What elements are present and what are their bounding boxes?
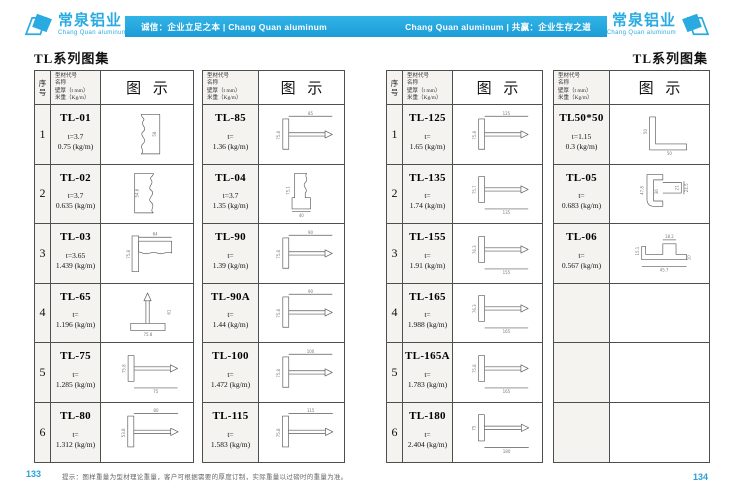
profile-section-drawing: 18075 — [456, 406, 540, 458]
profile-code: TL-75 — [60, 350, 91, 362]
brand-logo-text: 常泉铝业 Chang Quan aluminum — [58, 13, 127, 36]
footer-note: 提示：图样重量为型材理论重量，客户可根据需要的厚度订制，实际重量以过磅时的重量为… — [62, 471, 492, 481]
diagram-column-header: 图 示 — [610, 71, 709, 105]
svg-text:165: 165 — [502, 389, 510, 394]
profile-section-drawing: 75.861 — [104, 287, 190, 338]
svg-text:115: 115 — [306, 408, 314, 413]
profile-spec — [554, 403, 610, 463]
profile-weight: 1.439 (kg/m) — [56, 261, 95, 271]
profile-drawing-cell: 16576.3 — [453, 284, 542, 344]
banner-slogan-left: 诚信：企业立足之本 | Chang Quan aluminum — [141, 21, 327, 33]
profile-section-drawing: 11575.8 — [262, 406, 342, 458]
svg-text:135: 135 — [502, 210, 510, 215]
profile-weight: 1.74 (kg/m) — [410, 201, 445, 211]
profile-section-drawing: 8575.8 — [262, 109, 342, 160]
profile-table-1: 序 号型材代号名称壁厚（t mm）米重（Kg/m）图 示1TL-01t=3.70… — [34, 70, 194, 463]
profile-drawing-cell: 16575.8 — [453, 343, 542, 403]
profile-weight: 1.35 (kg/m) — [213, 201, 248, 211]
svg-text:50: 50 — [667, 151, 673, 156]
profile-code: TL-03 — [60, 231, 91, 243]
profile-spec: TL-180t=2.404 (kg/m) — [403, 403, 453, 463]
profile-table-4: 型材代号名称壁厚（t mm）米重（Kg/m）图 示TL50*50t=1.150.… — [553, 70, 710, 463]
banner-slogan-right: Chang Quan aluminum | 共赢：企业生存之道 — [405, 21, 591, 33]
page-number-left: 133 — [26, 469, 41, 479]
profile-section-drawing: 9075.8 — [262, 228, 342, 279]
profile-section-drawing: 47.8362124.5 — [613, 168, 706, 219]
profile-code: TL-85 — [215, 112, 246, 124]
profile-thickness: t= — [424, 370, 430, 380]
profile-drawing-cell: 13575.7 — [453, 165, 542, 225]
profile-section-drawing: 58 — [104, 109, 190, 160]
gem-icon — [680, 11, 710, 37]
profile-thickness: t=3.7 — [223, 191, 239, 201]
spec-header-line: 壁厚（t mm） — [207, 88, 240, 96]
svg-text:85: 85 — [308, 110, 314, 115]
profile-code: TL-65 — [60, 291, 91, 303]
row-seq: 1 — [35, 105, 51, 165]
profile-code: TL-06 — [566, 231, 597, 243]
profile-weight: 2.404 (kg/m) — [408, 440, 447, 450]
profile-drawing-cell: 54.6 — [101, 165, 193, 225]
svg-text:90: 90 — [308, 289, 314, 294]
profile-section-drawing: 15576.3 — [456, 228, 540, 279]
profile-spec: TL-125t=1.65 (kg/m) — [403, 105, 453, 165]
row-seq: 3 — [35, 224, 51, 284]
profile-section-drawing: 8053.8 — [104, 406, 190, 458]
profile-weight: 1.472 (kg/m) — [211, 380, 250, 390]
svg-text:21: 21 — [675, 185, 680, 191]
spec-header-line: 名称 — [207, 80, 218, 88]
profile-code: TL-02 — [60, 172, 91, 184]
profile-thickness: t=3.7 — [68, 191, 84, 201]
profile-weight: 1.44 (kg/m) — [213, 320, 248, 330]
profile-thickness: t= — [227, 310, 233, 320]
svg-text:64: 64 — [152, 231, 158, 236]
spec-header-line: 型材代号 — [207, 73, 229, 81]
profile-drawing-cell — [610, 403, 709, 463]
spec-column-header: 型材代号名称壁厚（t mm）米重（Kg/m） — [403, 71, 453, 105]
spec-header-line: 名称 — [558, 80, 569, 88]
svg-text:75.1: 75.1 — [285, 186, 290, 195]
profile-weight: 1.312 (kg/m) — [56, 440, 95, 450]
profile-weight: 1.196 (kg/m) — [56, 320, 95, 330]
svg-text:45.7: 45.7 — [660, 267, 669, 272]
profile-weight: 1.988 (kg/m) — [408, 320, 447, 330]
profile-thickness: t= — [227, 132, 233, 142]
profile-table-3: 序 号型材代号名称壁厚（t mm）米重（Kg/m）图 示1TL-125t=1.6… — [386, 70, 543, 463]
profile-thickness: t= — [424, 430, 430, 440]
profile-section-drawing: 9075.8 — [262, 287, 342, 338]
profile-weight: 1.91 (kg/m) — [410, 261, 445, 271]
catalog-sheet: 常泉铝业 Chang Quan aluminum 诚信：企业立足之本 | Cha… — [0, 0, 730, 498]
profile-spec: TL-165At=1.783 (kg/m) — [403, 343, 453, 403]
profile-spec — [554, 284, 610, 344]
profile-spec: TL-04t=3.71.35 (kg/m) — [203, 165, 259, 225]
profile-thickness: t= — [72, 430, 78, 440]
row-seq: 5 — [387, 343, 403, 403]
svg-text:75.8: 75.8 — [472, 130, 477, 139]
seq-column-header: 序 号 — [387, 71, 403, 105]
gem-icon — [24, 11, 54, 37]
svg-text:75.8: 75.8 — [276, 368, 281, 377]
profile-spec: TL-01t=3.70.75 (kg/m) — [51, 105, 101, 165]
profile-drawing-cell: 18.245.715.110 — [610, 224, 709, 284]
profile-thickness: t= — [72, 370, 78, 380]
brand-logo-left: 常泉铝业 Chang Quan aluminum — [24, 11, 127, 37]
svg-text:36: 36 — [654, 189, 659, 195]
profile-section-drawing: 54.6 — [104, 168, 190, 219]
spec-header-line: 米重（Kg/m） — [558, 95, 593, 103]
profile-code: TL-165A — [405, 350, 450, 362]
profile-section-drawing: 7575.8 — [104, 347, 190, 398]
profile-section-drawing: 18.245.715.110 — [613, 228, 706, 279]
profile-code: TL-100 — [212, 350, 249, 362]
profile-thickness: t=3.7 — [68, 132, 84, 142]
profile-drawing-cell: 9075.8 — [259, 284, 344, 344]
profile-section-drawing: 16576.3 — [456, 287, 540, 338]
profile-section-drawing: 12575.8 — [456, 109, 540, 160]
profile-drawing-cell: 58 — [101, 105, 193, 165]
row-seq: 3 — [387, 224, 403, 284]
profile-spec: TL-85t=1.36 (kg/m) — [203, 105, 259, 165]
svg-text:155: 155 — [502, 270, 510, 275]
profile-code: TL-80 — [60, 410, 91, 422]
diagram-column-header: 图 示 — [101, 71, 193, 105]
svg-text:76.3: 76.3 — [472, 304, 477, 313]
profile-drawing-cell: 11575.8 — [259, 403, 344, 463]
profile-thickness: t= — [424, 191, 430, 201]
profile-spec: TL-06t=0.567 (kg/m) — [554, 224, 610, 284]
profile-spec: TL-05t=0.683 (kg/m) — [554, 165, 610, 225]
svg-text:80: 80 — [153, 408, 159, 413]
profile-weight: 0.635 (kg/m) — [56, 201, 95, 211]
profile-code: TL-135 — [409, 172, 446, 184]
profile-drawing-cell: 12575.8 — [453, 105, 542, 165]
profile-section-drawing: 13575.7 — [456, 168, 540, 219]
svg-text:75.8: 75.8 — [276, 130, 281, 139]
row-seq: 4 — [35, 284, 51, 344]
profile-spec: TL-90At=1.44 (kg/m) — [203, 284, 259, 344]
brand-logo-text: 常泉铝业 Chang Quan aluminum — [607, 13, 676, 36]
profile-thickness: t= — [424, 310, 430, 320]
brand-name-cn: 常泉铝业 — [58, 13, 127, 28]
profile-section-drawing: 16575.8 — [456, 347, 540, 398]
svg-text:125: 125 — [502, 110, 510, 115]
profile-drawing-cell: 10075.8 — [259, 343, 344, 403]
profile-thickness: t= — [424, 251, 430, 261]
profile-spec: TL-02t=3.70.635 (kg/m) — [51, 165, 101, 225]
row-seq: 6 — [387, 403, 403, 463]
svg-text:61: 61 — [166, 309, 171, 315]
profile-spec: TL-80t=1.312 (kg/m) — [51, 403, 101, 463]
svg-text:18.2: 18.2 — [665, 233, 674, 238]
svg-text:53.8: 53.8 — [121, 428, 126, 437]
svg-text:75.8: 75.8 — [126, 249, 131, 258]
profile-spec: TL50*50t=1.150.3 (kg/m) — [554, 105, 610, 165]
profile-drawing-cell: 15576.3 — [453, 224, 542, 284]
svg-text:75.7: 75.7 — [472, 185, 477, 194]
brand-name-en: Chang Quan aluminum — [607, 30, 676, 36]
profile-weight: 0.75 (kg/m) — [58, 142, 93, 152]
right-page-title: TL系列图集 — [633, 48, 708, 67]
profile-thickness: t= — [72, 310, 78, 320]
profile-weight: 0.567 (kg/m) — [562, 261, 601, 271]
profile-drawing-cell: 9075.8 — [259, 224, 344, 284]
profile-weight: 1.583 (kg/m) — [211, 440, 250, 450]
svg-text:75.8: 75.8 — [472, 363, 477, 372]
profile-code: TL-115 — [212, 410, 248, 422]
profile-weight: 1.36 (kg/m) — [213, 142, 248, 152]
profile-drawing-cell: 18075 — [453, 403, 542, 463]
profile-section-drawing: 6475.8 — [104, 228, 190, 279]
row-seq: 1 — [387, 105, 403, 165]
diagram-column-header: 图 示 — [453, 71, 542, 105]
profile-section-drawing: 10075.8 — [262, 347, 342, 398]
svg-text:180: 180 — [502, 449, 510, 454]
spec-header-line: 型材代号 — [558, 73, 580, 81]
svg-text:75.8: 75.8 — [121, 363, 126, 372]
profile-weight: 1.39 (kg/m) — [213, 261, 248, 271]
profile-weight: 0.3 (kg/m) — [566, 142, 598, 152]
profile-thickness: t=1.15 — [572, 132, 591, 142]
row-seq: 4 — [387, 284, 403, 344]
svg-text:10: 10 — [687, 254, 692, 260]
svg-text:75.8: 75.8 — [276, 249, 281, 258]
profile-drawing-cell: 8575.8 — [259, 105, 344, 165]
profile-drawing-cell: 5050 — [610, 105, 709, 165]
profile-spec — [554, 343, 610, 403]
profile-thickness: t=3.65 — [66, 251, 85, 261]
spec-header-line: 壁厚（t mm） — [407, 88, 440, 96]
header-banner: 诚信：企业立足之本 | Chang Quan aluminum Chang Qu… — [125, 16, 607, 37]
profile-code: TL-125 — [409, 112, 446, 124]
profile-weight: 1.783 (kg/m) — [408, 380, 447, 390]
svg-text:24.5: 24.5 — [684, 183, 689, 192]
profile-drawing-cell: 75.140 — [259, 165, 344, 225]
profile-spec: TL-90t=1.39 (kg/m) — [203, 224, 259, 284]
profile-table-2: 型材代号名称壁厚（t mm）米重（Kg/m）图 示TL-85t=1.36 (kg… — [202, 70, 345, 463]
spec-header-line: 名称 — [407, 80, 418, 88]
profile-thickness: t= — [578, 191, 584, 201]
brand-name-cn: 常泉铝业 — [607, 13, 676, 28]
svg-text:76.3: 76.3 — [472, 244, 477, 253]
svg-text:50: 50 — [643, 128, 648, 134]
profile-drawing-cell — [610, 284, 709, 344]
svg-text:58: 58 — [152, 131, 157, 137]
svg-text:100: 100 — [306, 348, 314, 353]
profile-section-drawing: 75.140 — [262, 168, 342, 219]
profile-drawing-cell: 8053.8 — [101, 403, 193, 463]
profile-spec: TL-03t=3.651.439 (kg/m) — [51, 224, 101, 284]
svg-text:75.8: 75.8 — [143, 332, 152, 337]
profile-drawing-cell — [610, 343, 709, 403]
profile-thickness: t= — [227, 430, 233, 440]
profile-spec: TL-155t=1.91 (kg/m) — [403, 224, 453, 284]
svg-text:40: 40 — [298, 213, 304, 218]
profile-spec: TL-165t=1.988 (kg/m) — [403, 284, 453, 344]
spec-header-line: 名称 — [55, 80, 66, 88]
spec-column-header: 型材代号名称壁厚（t mm）米重（Kg/m） — [203, 71, 259, 105]
row-seq: 2 — [35, 165, 51, 225]
profile-spec: TL-100t=1.472 (kg/m) — [203, 343, 259, 403]
svg-text:90: 90 — [308, 229, 314, 234]
profile-thickness: t= — [424, 132, 430, 142]
left-page-title: TL系列图集 — [34, 48, 109, 67]
profile-thickness: t= — [227, 251, 233, 261]
svg-text:54.6: 54.6 — [134, 188, 139, 197]
svg-text:15.1: 15.1 — [635, 246, 640, 255]
row-seq: 2 — [387, 165, 403, 225]
spec-header-line: 米重（Kg/m） — [407, 95, 442, 103]
profile-code: TL-01 — [60, 112, 91, 124]
profile-code: TL-180 — [409, 410, 446, 422]
profile-spec: TL-75t=1.285 (kg/m) — [51, 343, 101, 403]
svg-text:165: 165 — [502, 329, 510, 334]
profile-spec: TL-135t=1.74 (kg/m) — [403, 165, 453, 225]
profile-code: TL-04 — [215, 172, 246, 184]
profile-section-drawing: 5050 — [613, 109, 706, 160]
profile-code: TL-155 — [409, 231, 446, 243]
spec-header-line: 型材代号 — [407, 73, 429, 81]
spec-header-line: 壁厚（t mm） — [558, 88, 591, 96]
profile-code: TL50*50 — [559, 112, 603, 124]
profile-code: TL-165 — [409, 291, 446, 303]
profile-thickness: t= — [227, 370, 233, 380]
spec-header-line: 米重（Kg/m） — [207, 95, 242, 103]
seq-column-header: 序 号 — [35, 71, 51, 105]
spec-header-line: 型材代号 — [55, 73, 77, 81]
profile-weight: 0.683 (kg/m) — [562, 201, 601, 211]
profile-code: TL-90A — [211, 291, 250, 303]
svg-text:75.8: 75.8 — [275, 428, 280, 437]
brand-logo-right: 常泉铝业 Chang Quan aluminum — [607, 11, 710, 37]
svg-text:75: 75 — [471, 425, 476, 431]
profile-weight: 1.65 (kg/m) — [410, 142, 445, 152]
svg-text:75: 75 — [153, 389, 159, 394]
profile-code: TL-90 — [215, 231, 246, 243]
spec-column-header: 型材代号名称壁厚（t mm）米重（Kg/m） — [554, 71, 610, 105]
spec-column-header: 型材代号名称壁厚（t mm）米重（Kg/m） — [51, 71, 101, 105]
profile-thickness: t= — [578, 251, 584, 261]
page-number-right: 134 — [693, 472, 708, 482]
profile-spec: TL-65t=1.196 (kg/m) — [51, 284, 101, 344]
svg-text:75.8: 75.8 — [276, 309, 281, 318]
brand-name-en: Chang Quan aluminum — [58, 30, 127, 36]
profile-drawing-cell: 75.861 — [101, 284, 193, 344]
profile-code: TL-05 — [566, 172, 597, 184]
profile-drawing-cell: 47.8362124.5 — [610, 165, 709, 225]
diagram-column-header: 图 示 — [259, 71, 344, 105]
profile-drawing-cell: 6475.8 — [101, 224, 193, 284]
profile-weight: 1.285 (kg/m) — [56, 380, 95, 390]
profile-spec: TL-115t=1.583 (kg/m) — [203, 403, 259, 463]
spec-header-line: 壁厚（t mm） — [55, 88, 88, 96]
profile-drawing-cell: 7575.8 — [101, 343, 193, 403]
spec-header-line: 米重（Kg/m） — [55, 95, 90, 103]
row-seq: 6 — [35, 403, 51, 463]
svg-text:47.8: 47.8 — [640, 186, 645, 195]
row-seq: 5 — [35, 343, 51, 403]
